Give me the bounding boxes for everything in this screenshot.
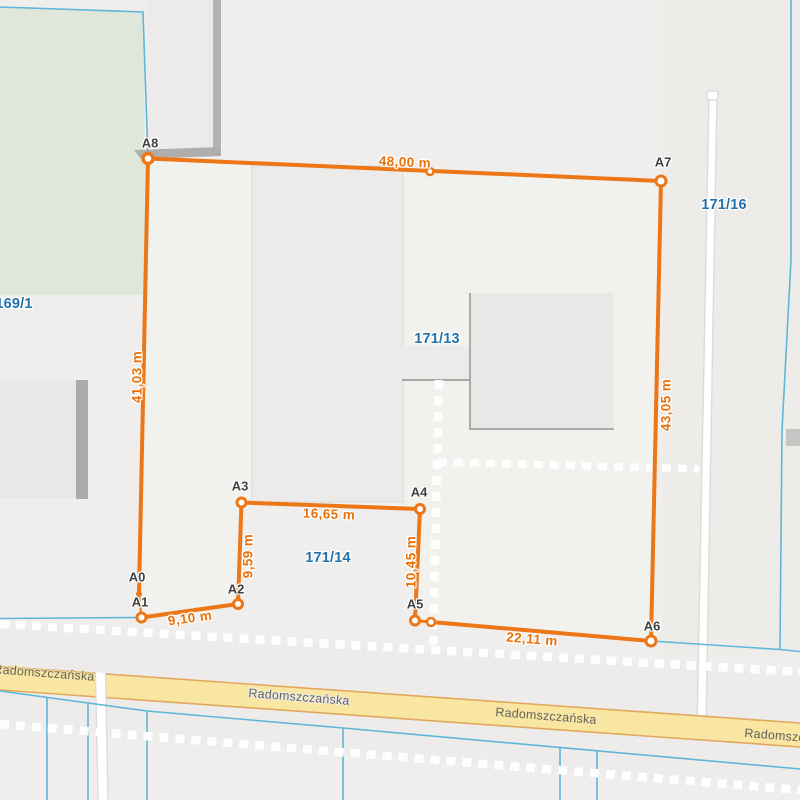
vertex-marker-a7[interactable] (656, 176, 666, 186)
distance-label-a2-a3: 9,59 m (241, 534, 256, 578)
vertex-label-a1: A1 (132, 595, 149, 610)
vertex-marker-a2[interactable] (234, 600, 243, 609)
map-canvas[interactable]: A0 A1 A2 A3 A4 A5 A6 A7 A8 9,10 m 9,59 m… (0, 0, 800, 800)
building-middle (252, 166, 403, 502)
vertex-label-a0: A0 (129, 570, 146, 585)
building-right-edge (786, 429, 800, 446)
vertex-label-a8: A8 (142, 136, 159, 151)
building-connector (402, 346, 472, 380)
vertex-label-a6: A6 (644, 619, 661, 634)
vertex-label-a4: A4 (411, 485, 428, 500)
vertex-label-a5: A5 (407, 597, 424, 612)
distance-label-a4-a5: 10,45 m (404, 536, 419, 588)
parcel-label-171-14: 171/14 (305, 550, 351, 566)
distance-label-a3-a4: 16,65 m (303, 505, 356, 522)
vertex-marker-a1[interactable] (137, 613, 146, 622)
right-parcel-tint (662, 0, 800, 655)
parcel-label-169-1: 169/1 (0, 296, 33, 312)
green-area (0, 7, 147, 295)
building-right (470, 293, 614, 429)
map-layers (0, 0, 800, 800)
vertex-marker-a5b[interactable] (427, 618, 435, 626)
vertex-marker-a3[interactable] (237, 498, 246, 507)
distance-label-a8-a0: 41,03 m (130, 351, 145, 403)
vertex-label-a3: A3 (232, 479, 249, 494)
vertex-marker-a8[interactable] (143, 154, 153, 164)
vertex-marker-a5[interactable] (411, 616, 420, 625)
parcel-label-171-16: 171/16 (701, 197, 747, 213)
vertex-marker-a4[interactable] (416, 505, 425, 514)
distance-label-a6-a7: 43,05 m (659, 379, 674, 431)
building-left (0, 380, 88, 499)
parcel-label-171-13: 171/13 (414, 331, 460, 347)
vertex-label-a2: A2 (228, 582, 245, 597)
vertex-marker-a6[interactable] (646, 636, 656, 646)
vertex-label-a7: A7 (655, 155, 672, 170)
distance-label-a7-a8: 48,00 m (379, 153, 432, 170)
